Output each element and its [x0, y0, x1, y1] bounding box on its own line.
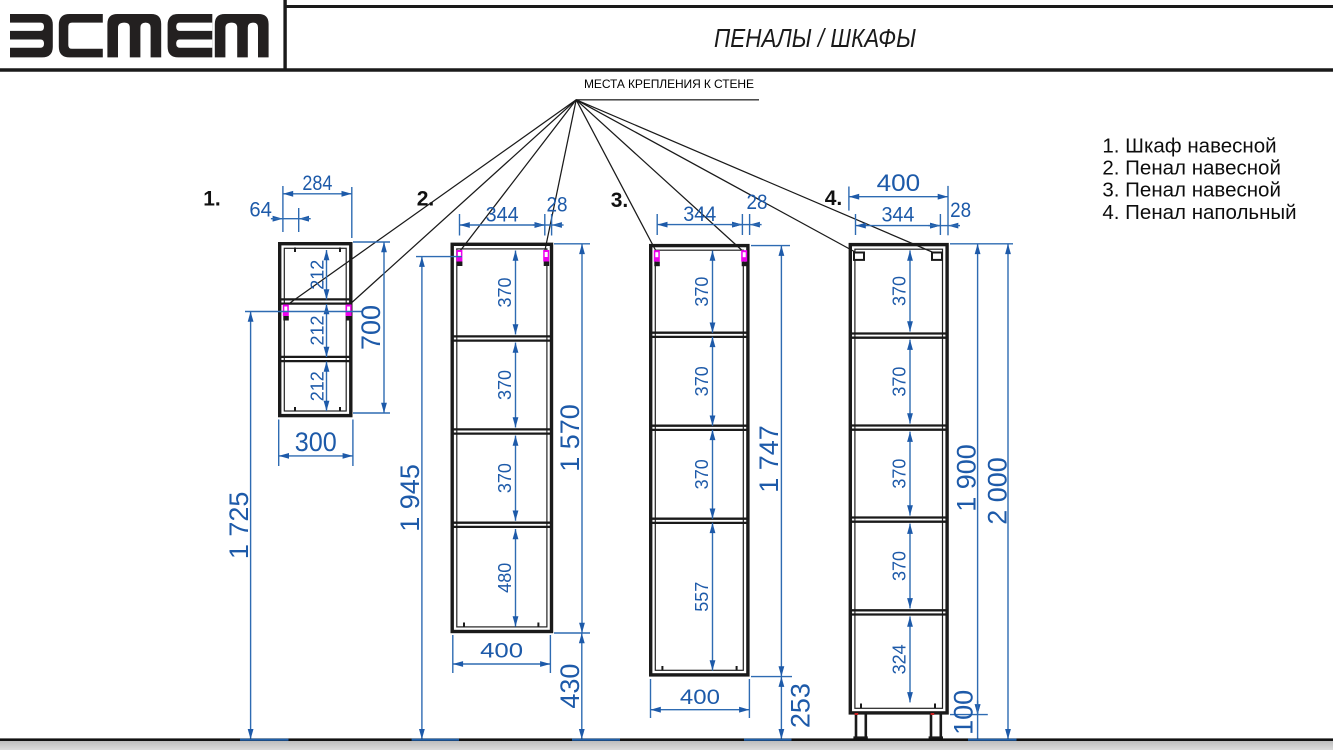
svg-text:370: 370 [495, 277, 515, 307]
svg-text:557: 557 [692, 582, 712, 612]
svg-text:64: 64 [249, 199, 272, 222]
svg-text:284: 284 [302, 172, 332, 195]
svg-text:370: 370 [890, 367, 910, 397]
svg-text:430: 430 [555, 664, 585, 709]
svg-text:370: 370 [692, 459, 712, 489]
svg-text:344: 344 [683, 203, 716, 226]
svg-text:2.: 2. [417, 188, 435, 211]
svg-text:МЕСТА КРЕПЛЕНИЯ К СТЕНЕ: МЕСТА КРЕПЛЕНИЯ К СТЕНЕ [584, 77, 754, 91]
svg-text:370: 370 [890, 459, 910, 489]
svg-text:100: 100 [949, 690, 979, 735]
svg-text:400: 400 [877, 170, 921, 197]
svg-text:1. Шкаф навесной: 1. Шкаф навесной [1102, 134, 1276, 157]
svg-text:1 900: 1 900 [952, 444, 982, 512]
svg-text:370: 370 [692, 277, 712, 307]
svg-text:212: 212 [308, 315, 328, 345]
svg-text:1.: 1. [203, 188, 221, 211]
svg-text:28: 28 [950, 199, 971, 222]
svg-text:ПЕНАЛЫ / ШКАФЫ: ПЕНАЛЫ / ШКАФЫ [714, 23, 916, 53]
svg-text:212: 212 [308, 371, 328, 401]
svg-text:370: 370 [495, 370, 515, 400]
svg-text:370: 370 [692, 366, 712, 396]
svg-text:370: 370 [890, 276, 910, 306]
svg-text:370: 370 [890, 551, 910, 581]
svg-text:324: 324 [890, 644, 910, 674]
svg-text:400: 400 [680, 686, 720, 709]
svg-text:480: 480 [495, 563, 515, 593]
svg-text:400: 400 [480, 640, 523, 663]
svg-text:4.: 4. [825, 187, 843, 210]
svg-text:1 570: 1 570 [555, 404, 585, 472]
svg-text:1 747: 1 747 [754, 425, 784, 493]
svg-text:4. Пенал напольный: 4. Пенал напольный [1102, 201, 1296, 224]
svg-text:344: 344 [881, 204, 914, 227]
svg-text:700: 700 [356, 305, 386, 350]
svg-text:344: 344 [486, 204, 519, 227]
svg-text:3.: 3. [611, 189, 629, 212]
svg-text:370: 370 [495, 463, 515, 493]
svg-text:300: 300 [295, 427, 337, 457]
svg-text:212: 212 [308, 260, 328, 290]
svg-text:1 725: 1 725 [224, 492, 254, 560]
svg-text:3. Пенал навесной: 3. Пенал навесной [1102, 179, 1281, 202]
svg-text:28: 28 [547, 194, 568, 217]
svg-text:253: 253 [786, 683, 816, 728]
svg-text:2 000: 2 000 [982, 457, 1012, 525]
svg-text:1 945: 1 945 [395, 464, 425, 532]
svg-text:28: 28 [747, 191, 768, 214]
svg-text:2. Пенал навесной: 2. Пенал навесной [1102, 157, 1281, 180]
